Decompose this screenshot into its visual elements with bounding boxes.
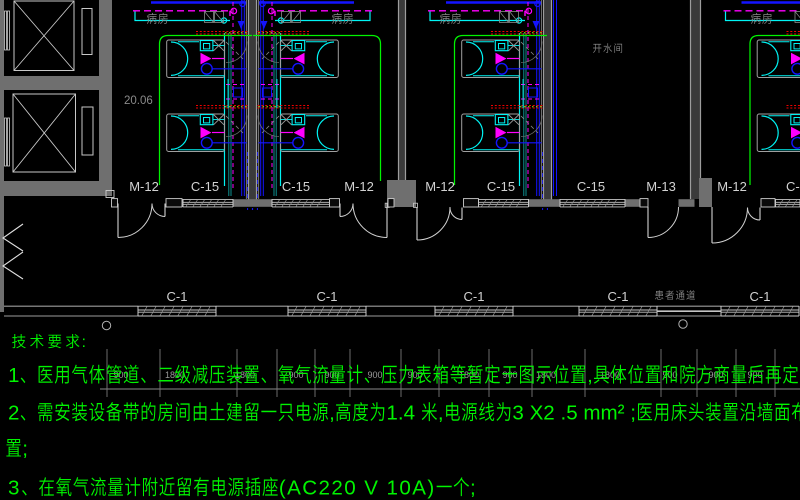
svg-text:C-1: C-1 [317,289,338,304]
svg-text:;: ; [22,438,28,461]
svg-text:C-1: C-1 [167,289,188,304]
svg-text:;: ; [470,477,477,500]
svg-text:(AC220 V 10A): (AC220 V 10A) [279,477,436,500]
svg-text:M-12: M-12 [344,179,374,194]
svg-text:C-15: C-15 [487,179,515,194]
svg-text:1.4: 1.4 [386,402,420,425]
svg-text:M-12: M-12 [129,179,159,194]
svg-text::: : [82,334,86,351]
svg-text:,: , [329,402,335,425]
svg-text:20.06: 20.06 [124,95,153,107]
svg-text:C-15: C-15 [191,179,219,194]
svg-text:2: 2 [8,402,19,425]
svg-text:900: 900 [367,370,382,380]
svg-text:,: , [438,402,444,425]
svg-text:C-15: C-15 [282,179,310,194]
svg-text:3 X2 .5 mm² ;: 3 X2 .5 mm² ; [512,402,636,425]
svg-text:M-12: M-12 [717,179,747,194]
svg-text:C-15: C-15 [577,179,605,194]
svg-text:M-13: M-13 [646,179,676,194]
svg-text:C-15: C-15 [786,179,800,194]
svg-text:3: 3 [8,477,21,500]
svg-text:M-12: M-12 [425,179,455,194]
svg-text:C-1: C-1 [464,289,485,304]
svg-text:C-1: C-1 [750,289,771,304]
svg-text:,: , [587,364,593,387]
svg-text:1: 1 [8,364,19,387]
svg-text:C-1: C-1 [608,289,629,304]
